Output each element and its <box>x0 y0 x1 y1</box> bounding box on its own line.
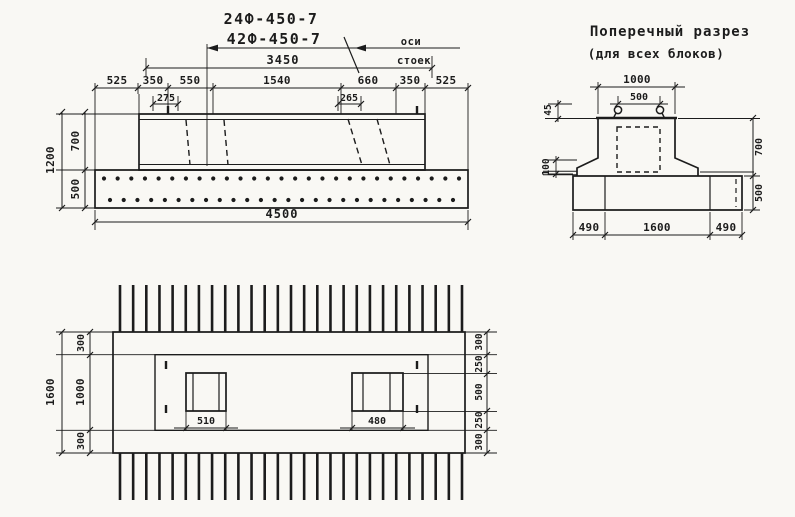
plan-beam-outline <box>155 355 428 431</box>
rebar-dot <box>382 198 386 202</box>
rebar-dot <box>416 176 420 180</box>
plan-slab-outline <box>113 332 465 453</box>
plan-socket-left <box>186 373 226 411</box>
axes-label-line1: оси <box>401 36 421 48</box>
rebar-dot <box>423 198 427 202</box>
rebar-dot <box>307 176 311 180</box>
rebar-dot <box>314 198 318 202</box>
rebar-dot <box>300 198 304 202</box>
dim-300-top: 300 <box>76 334 87 352</box>
dim-1600-base: 1600 <box>643 221 671 234</box>
rebar-dot <box>157 176 161 180</box>
dim-700-section: 700 <box>754 138 765 156</box>
rebar-dot <box>143 176 147 180</box>
dim-r250-2: 250 <box>474 411 485 428</box>
rebar-dot <box>375 176 379 180</box>
dim-100: 100 <box>541 158 552 175</box>
rebar-dot <box>211 176 215 180</box>
dim-265: 265 <box>340 93 358 104</box>
rebar-dot <box>430 176 434 180</box>
dim-350-right: 350 <box>400 74 421 87</box>
plan-socket-right-walls <box>363 373 390 411</box>
elevation-view: 24Ф-450-7 42Ф-450-7 оси стоек 3450 525 3… <box>44 10 471 230</box>
rebar-dot <box>218 198 222 202</box>
dim-660: 660 <box>358 74 379 87</box>
cross-section-view: Поперечный разрез (для всех блоков) 1000… <box>541 24 765 240</box>
dim-275: 275 <box>157 93 175 104</box>
rebar-dot <box>252 176 256 180</box>
rebar-dot <box>245 198 249 202</box>
rebar-dot <box>334 176 338 180</box>
lifting-loop-ticks <box>168 106 417 114</box>
dim-r300-1: 300 <box>474 333 485 350</box>
rebar-dot <box>184 176 188 180</box>
beam-outline <box>139 114 425 170</box>
rebar-dot <box>443 176 447 180</box>
block-mark-title-1: 24Ф-450-7 <box>224 10 319 28</box>
dim-3450: 3450 <box>267 53 300 67</box>
dim-1600-plan: 1600 <box>44 378 57 406</box>
plan-rebar-bars-bottom <box>120 453 462 500</box>
dim-490-right: 490 <box>716 221 737 234</box>
rebar-dot <box>293 176 297 180</box>
rebar-dot <box>163 198 167 202</box>
rebar-dot <box>361 176 365 180</box>
axes-label-line2: стоек <box>397 55 431 67</box>
rebar-dot <box>273 198 277 202</box>
beam-inner-lines <box>139 120 425 165</box>
rebar-dot <box>279 176 283 180</box>
rebar-dot <box>108 198 112 202</box>
plan-view: 510 480 1600 300 1000 300 300 250 500 25… <box>44 285 497 500</box>
rebar-dot <box>122 198 126 202</box>
rebar-dot <box>190 198 194 202</box>
section-socket-hidden <box>617 127 660 172</box>
slab-outline <box>95 170 468 208</box>
dim-550: 550 <box>180 74 201 87</box>
rebar-dot <box>177 198 181 202</box>
rebar-dot <box>410 198 414 202</box>
dim-4500: 4500 <box>266 207 299 221</box>
dim-700: 700 <box>69 131 82 152</box>
rebar-dot <box>320 176 324 180</box>
rebar-dot <box>204 198 208 202</box>
rebar-dot <box>149 198 153 202</box>
plan-rebar-bars-top <box>120 285 462 332</box>
axes-leader-arrow-right <box>355 45 366 52</box>
dim-r500: 500 <box>474 383 485 400</box>
dim-510: 510 <box>197 416 215 427</box>
dim-1000: 1000 <box>623 73 651 86</box>
rebar-dot <box>341 198 345 202</box>
plan-axis-marks <box>166 361 417 413</box>
dim-525-right: 525 <box>436 74 457 87</box>
dim-500: 500 <box>69 179 82 200</box>
dim-r250-1: 250 <box>474 355 485 372</box>
rebar-dot <box>225 176 229 180</box>
rebar-dot <box>197 176 201 180</box>
dim-1200: 1200 <box>44 146 57 174</box>
rebar-dot <box>369 198 373 202</box>
block-mark-title-2: 42Ф-450-7 <box>227 30 322 48</box>
rebar-dot <box>102 176 106 180</box>
rebar-dot <box>129 176 133 180</box>
rebar-dot <box>170 176 174 180</box>
slab-rebar-dots-top-row <box>102 176 461 180</box>
dim-45: 45 <box>543 104 554 116</box>
lifting-loop-left-icon <box>614 106 621 113</box>
rebar-dot <box>259 198 263 202</box>
rebar-dot <box>231 198 235 202</box>
slab-wing-boundaries <box>605 176 710 210</box>
dim-300-bottom: 300 <box>76 432 87 450</box>
section-title-line2: (для всех блоков) <box>588 46 724 61</box>
dim-480: 480 <box>368 416 386 427</box>
axes-leader-arrow-left <box>207 45 218 52</box>
socket-right-hidden-lines <box>348 119 390 165</box>
rebar-dot <box>451 198 455 202</box>
section-title-line1: Поперечный разрез <box>590 24 750 40</box>
rebar-dot <box>355 198 359 202</box>
rebar-dot <box>327 198 331 202</box>
section-slab-outline <box>573 176 742 210</box>
lifting-loop-right-icon <box>656 106 663 113</box>
rebar-dot <box>402 176 406 180</box>
dim-500-loops: 500 <box>630 92 648 103</box>
rebar-dot <box>396 198 400 202</box>
dim-525-left: 525 <box>107 74 128 87</box>
dim-1000-plan: 1000 <box>74 378 87 406</box>
plan-left-ext <box>56 332 155 453</box>
rebar-dot <box>286 198 290 202</box>
rebar-dot <box>348 176 352 180</box>
rebar-dot <box>389 176 393 180</box>
dim-350-left: 350 <box>143 74 164 87</box>
rebar-dot <box>457 176 461 180</box>
rebar-dot <box>135 198 139 202</box>
rebar-dot <box>238 176 242 180</box>
plan-socket-right <box>352 373 403 411</box>
dim-490-left: 490 <box>579 221 600 234</box>
dim-500-section: 500 <box>754 184 765 202</box>
plan-socket-left-walls <box>193 373 219 411</box>
foundation-block-technical-drawing: 24Ф-450-7 42Ф-450-7 оси стоек 3450 525 3… <box>0 0 795 517</box>
slab-rebar-dots-bottom-row <box>108 198 455 202</box>
dim-1540: 1540 <box>263 74 291 87</box>
rebar-dot <box>437 198 441 202</box>
rebar-dot <box>266 176 270 180</box>
rebar-dot <box>116 176 120 180</box>
dim-r300-2: 300 <box>474 433 485 450</box>
